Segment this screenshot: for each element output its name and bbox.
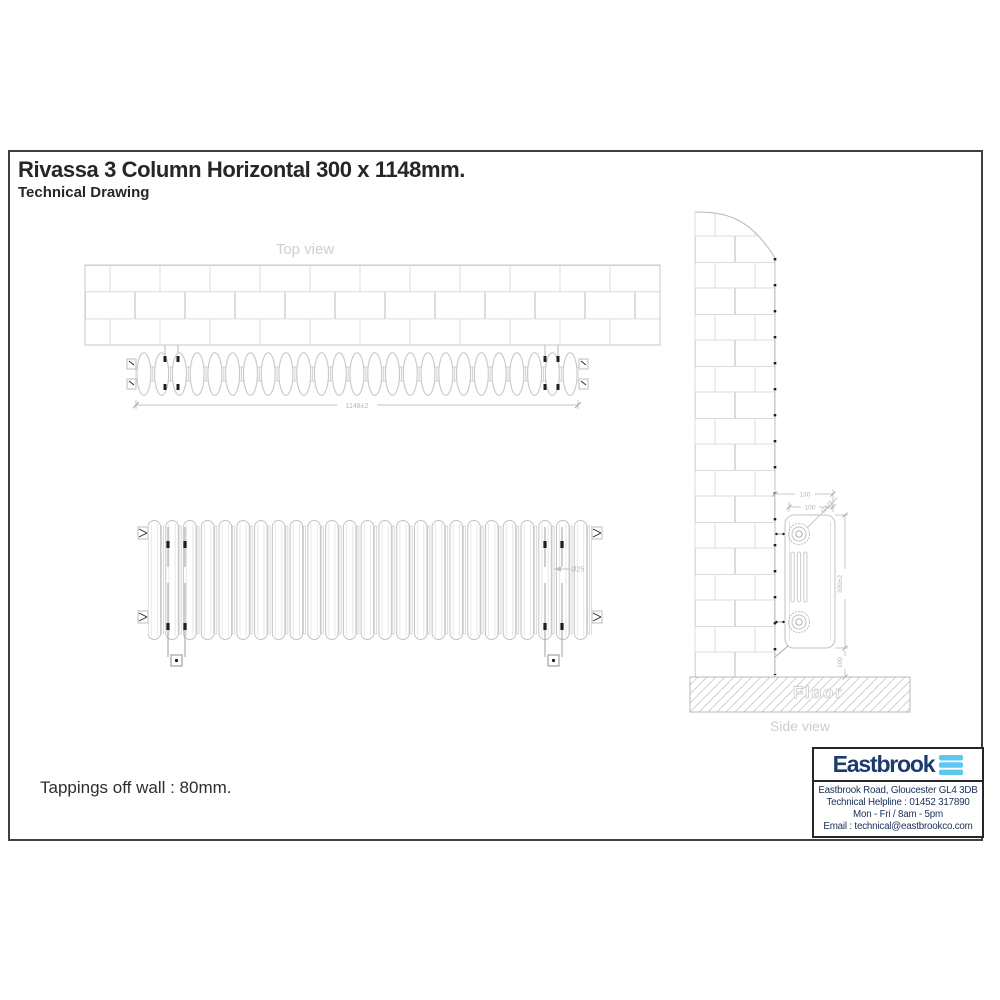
side-view-overall-depth-dim: 130 xyxy=(800,492,811,499)
eastbrook-waves-icon xyxy=(939,754,963,776)
side-view-floor-clearance-dim: 100 xyxy=(837,657,844,668)
top-view-drawing: Top view 1148±2 xyxy=(75,232,675,422)
front-view-foot-bolt xyxy=(175,659,178,662)
brand-address: Eastbrook Road, Gloucester GL4 3DB xyxy=(814,786,982,796)
front-view-tube-dia-dim: Ø25 xyxy=(571,567,584,574)
page-title: Rivassa 3 Column Horizontal 300 x 1148mm… xyxy=(18,157,465,183)
brand-hours: Mon - Fri / 8am - 5pm xyxy=(814,810,982,820)
side-view-dim-extensions-right xyxy=(835,515,848,677)
tappings-note: Tappings off wall : 80mm. xyxy=(40,778,232,798)
page-subtitle: Technical Drawing xyxy=(18,184,465,201)
side-view-height-dim: 300±2 xyxy=(837,575,844,593)
brand-info: Eastbrook Road, Gloucester GL4 3DB Techn… xyxy=(814,782,982,836)
front-view-feet xyxy=(171,655,559,666)
brand-email: Email : technical@eastbrookco.com xyxy=(814,822,982,832)
side-view-column-depth-dim: 100 xyxy=(805,505,816,512)
brand-box: Eastbrook Eastbrook Road, Gloucester GL4… xyxy=(812,747,984,838)
brand-helpline: Technical Helpline : 01452 317890 xyxy=(814,798,982,808)
front-view-columns xyxy=(148,520,592,640)
brand-logo: Eastbrook xyxy=(814,749,982,782)
top-view-wall xyxy=(85,265,660,345)
title-block: Rivassa 3 Column Horizontal 300 x 1148mm… xyxy=(18,157,465,201)
side-view-column-slots xyxy=(791,552,807,602)
page: Rivassa 3 Column Horizontal 300 x 1148mm… xyxy=(0,0,1000,1000)
top-view-radiator-sections xyxy=(135,351,579,397)
front-view-foot-bolt xyxy=(552,659,555,662)
top-view-width-dim: 1148±2 xyxy=(346,403,369,410)
side-view-label: Side view xyxy=(770,718,831,734)
side-view-drawing: 130 100 G1/2 300±2 100 Floor Side view xyxy=(685,195,995,740)
side-view-wall xyxy=(695,210,775,677)
side-view-bracket-dots xyxy=(775,533,784,623)
brand-name: Eastbrook xyxy=(833,751,935,778)
top-view-label: Top view xyxy=(276,241,335,258)
side-view-floor-label: Floor xyxy=(793,683,843,702)
front-view-drawing: Ø25 xyxy=(130,505,630,675)
